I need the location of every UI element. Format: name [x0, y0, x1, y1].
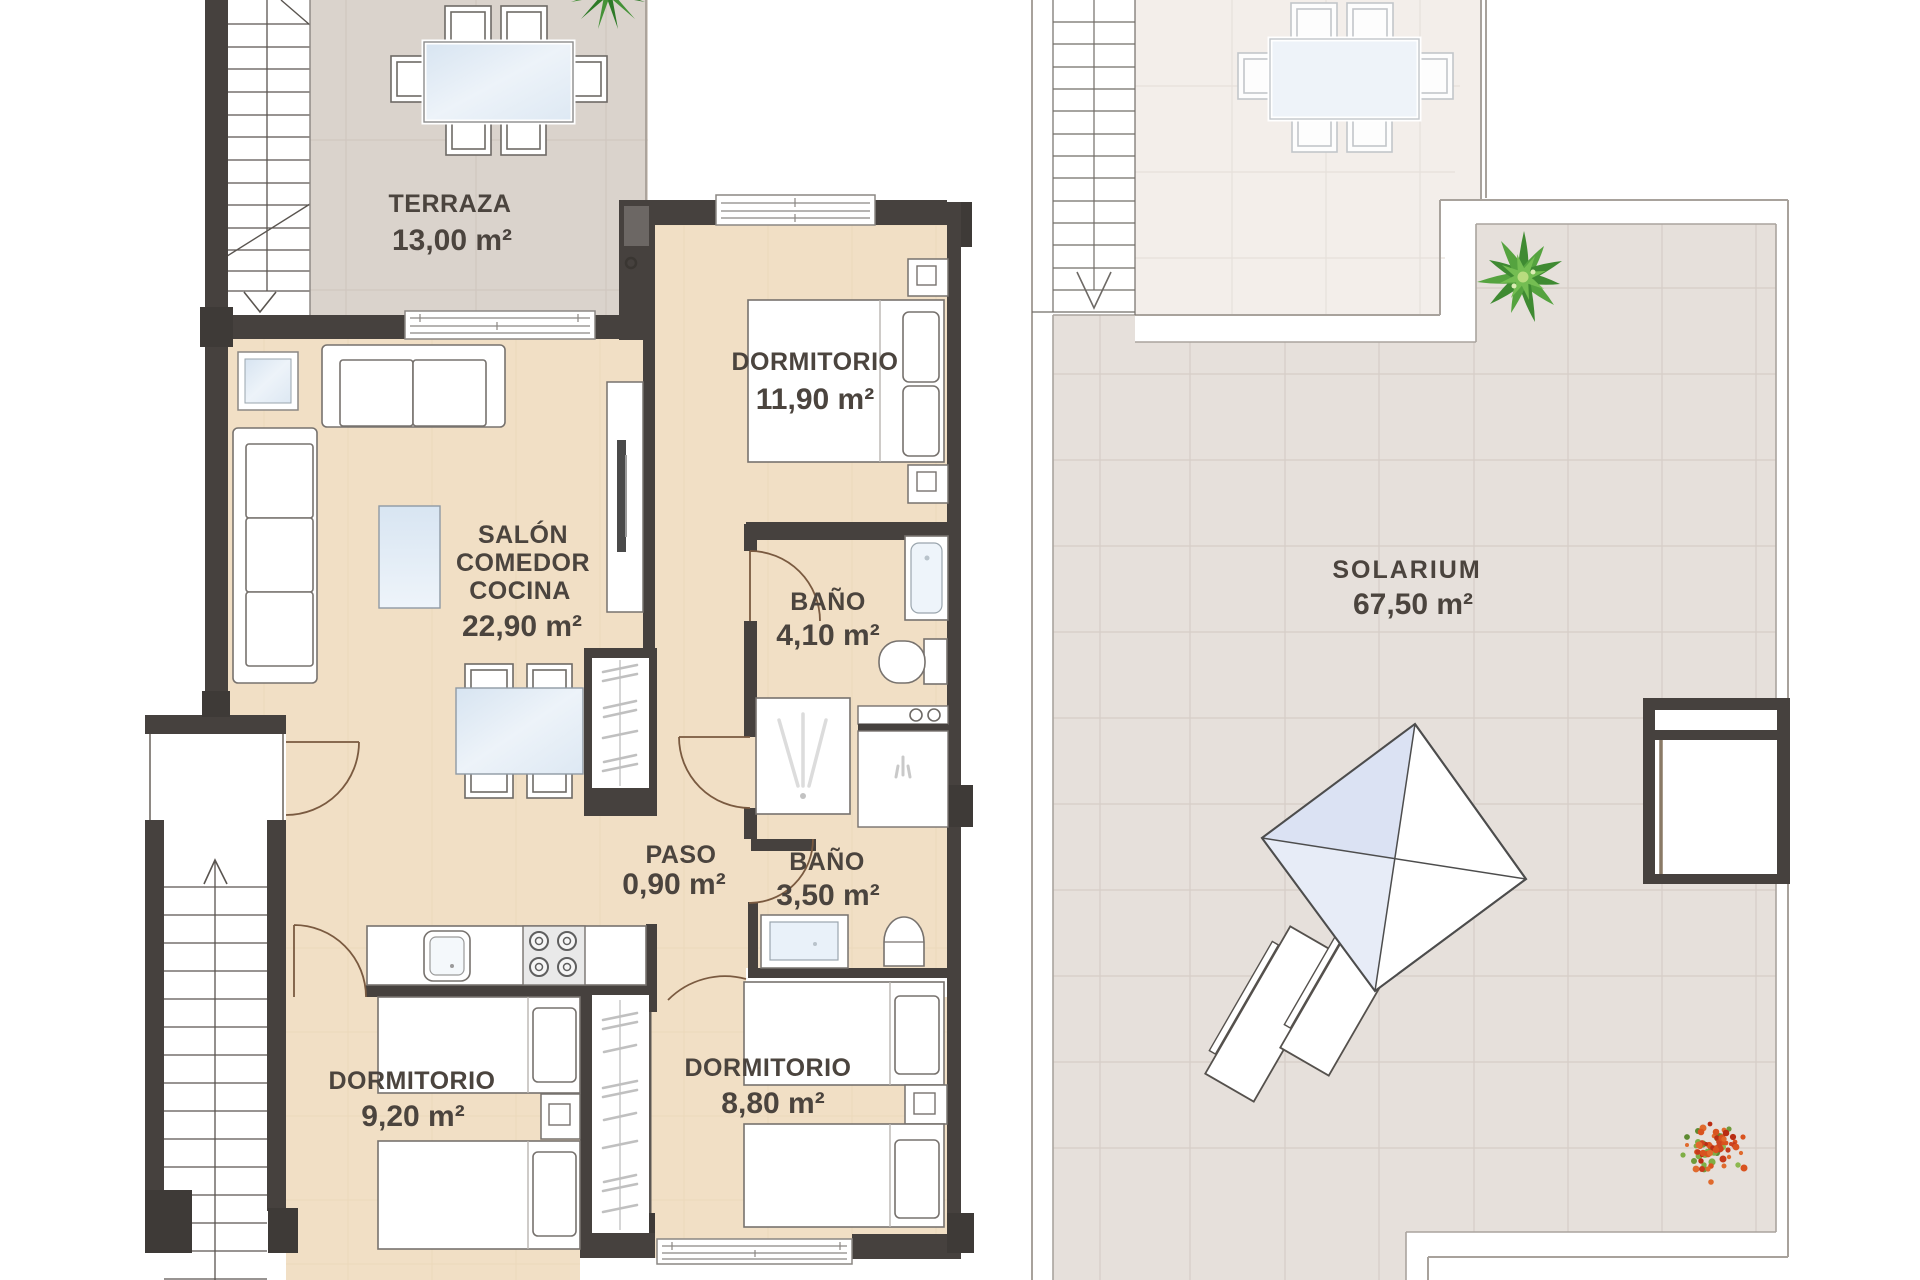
svg-text:COCINA: COCINA: [469, 577, 571, 605]
svg-text:4,10 m²: 4,10 m²: [776, 619, 879, 652]
svg-text:DORMITORIO: DORMITORIO: [731, 348, 898, 376]
svg-text:DORMITORIO: DORMITORIO: [684, 1054, 851, 1082]
svg-text:PASO: PASO: [646, 841, 717, 869]
svg-text:TERRAZA: TERRAZA: [389, 190, 512, 218]
svg-text:67,50 m²: 67,50 m²: [1353, 588, 1473, 621]
svg-text:0,90 m²: 0,90 m²: [622, 868, 725, 901]
svg-text:3,50 m²: 3,50 m²: [776, 879, 879, 912]
svg-text:SOLARIUM: SOLARIUM: [1332, 556, 1481, 584]
svg-text:22,90 m²: 22,90 m²: [462, 610, 582, 643]
svg-text:13,00 m²: 13,00 m²: [392, 224, 512, 257]
svg-text:BAÑO: BAÑO: [789, 846, 865, 876]
svg-text:COMEDOR: COMEDOR: [456, 549, 590, 577]
svg-text:11,90 m²: 11,90 m²: [756, 383, 874, 416]
svg-text:BAÑO: BAÑO: [790, 586, 866, 616]
svg-text:8,80 m²: 8,80 m²: [721, 1087, 824, 1120]
svg-text:SALÓN: SALÓN: [478, 519, 568, 549]
svg-text:9,20 m²: 9,20 m²: [361, 1100, 464, 1133]
svg-text:DORMITORIO: DORMITORIO: [328, 1067, 495, 1095]
